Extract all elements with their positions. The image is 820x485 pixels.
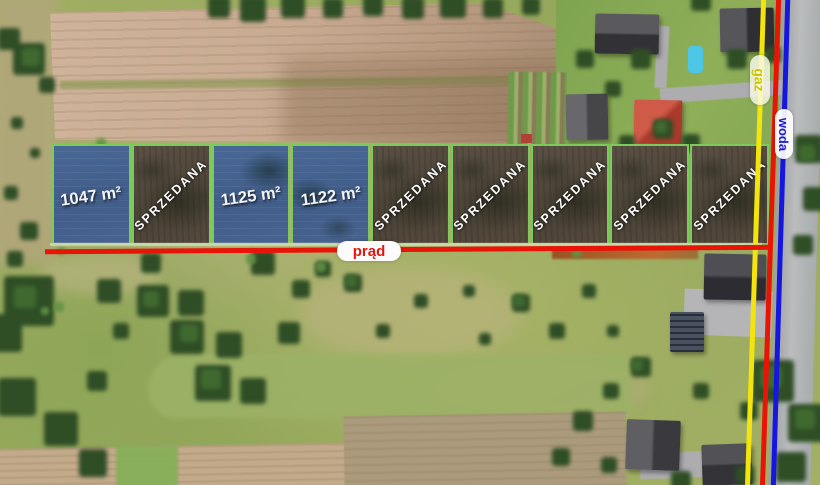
power-label: prąd xyxy=(337,241,401,261)
plot-1: 1047 m² xyxy=(52,144,131,245)
plot-5: SPRZEDANA xyxy=(371,144,450,245)
allotment-gardens xyxy=(507,71,566,146)
green-field-patch xyxy=(116,446,178,485)
dirt-patch xyxy=(40,255,160,295)
plots-row: 1047 m² SPRZEDANA 1125 m² 1122 m² SPRZED… xyxy=(52,144,769,245)
plot-4: 1122 m² xyxy=(291,144,370,245)
plot-area-label: 1125 m² xyxy=(220,184,283,211)
plot-sold-label: SPRZEDANA xyxy=(531,156,610,233)
red-roof-house xyxy=(634,100,683,145)
plot-2: SPRZEDANA xyxy=(132,144,211,245)
plot-sold-label: SPRZEDANA xyxy=(371,156,450,233)
solar-roof-building xyxy=(670,312,704,352)
bottom-field xyxy=(343,412,626,485)
dirt-patch xyxy=(300,268,520,360)
house-roof xyxy=(625,419,681,471)
plot-7: SPRZEDANA xyxy=(531,144,610,245)
garden-shed xyxy=(521,134,532,143)
gas-label: gaz xyxy=(750,55,770,105)
plot-area-label: 1122 m² xyxy=(299,184,362,211)
dry-grass-strip xyxy=(0,0,58,264)
plot-3: 1125 m² xyxy=(212,144,291,245)
bushes xyxy=(0,0,2,2)
house-roof xyxy=(720,8,775,53)
house-roof xyxy=(566,94,609,141)
mowed-meadow-strip xyxy=(148,354,632,418)
house-roof xyxy=(595,13,660,54)
aerial-plot-map: 1047 m² SPRZEDANA 1125 m² 1122 m² SPRZED… xyxy=(0,0,820,485)
swimming-pool xyxy=(688,46,703,73)
plot-area-label: 1047 m² xyxy=(60,184,124,211)
water-label: woda xyxy=(775,109,793,159)
plot-8: SPRZEDANA xyxy=(610,144,689,245)
plot-sold-label: SPRZEDANA xyxy=(611,156,690,233)
house-roof xyxy=(704,253,767,300)
plot-6: SPRZEDANA xyxy=(451,144,530,245)
plowed-field xyxy=(50,3,565,144)
plot-sold-label: SPRZEDANA xyxy=(451,156,530,233)
plot-sold-label: SPRZEDANA xyxy=(132,156,211,233)
